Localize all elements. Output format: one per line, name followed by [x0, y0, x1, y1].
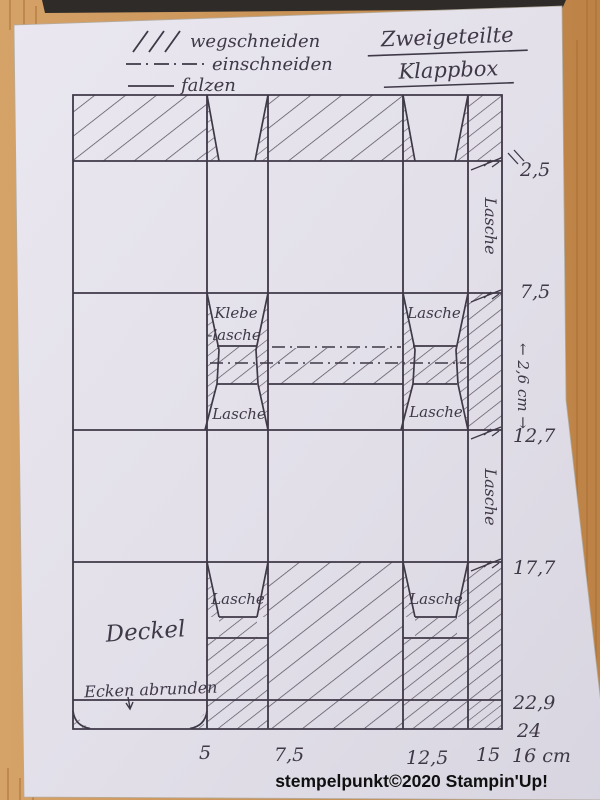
title-line2: Klappbox: [397, 56, 499, 84]
legend-label-falzen: falzen: [179, 75, 236, 96]
lasche-label-lid-left: Lasche: [210, 590, 265, 608]
klebelasche-label-line1: Klebe: [213, 304, 257, 322]
measure-16cm: 16 cm: [512, 745, 571, 767]
measure-17-7: 17,7: [513, 557, 556, 579]
measure-7-5b: 7,5: [274, 744, 304, 766]
template-photo-canvas: wegschneiden einschneiden falzen Zweiget…: [0, 0, 600, 800]
slit-width-note: ← 2,6 cm →: [514, 343, 532, 429]
measure-5: 5: [199, 742, 211, 764]
legend-label-wegschneiden: wegschneiden: [190, 31, 320, 52]
lasche-label-side-bottom: Lasche: [481, 467, 500, 525]
measure-12-7: 12,7: [513, 425, 556, 447]
lasche-label-mid-left-bottom: Lasche: [211, 405, 266, 423]
lasche-label-side-top: Lasche: [481, 196, 500, 254]
measure-12-5: 12,5: [406, 747, 448, 769]
measure-24: 24: [516, 720, 541, 742]
title-line1: Zweigeteilte: [379, 23, 514, 52]
photo-of-hand-drawn-template: wegschneiden einschneiden falzen Zweiget…: [0, 0, 600, 800]
measure-15: 15: [476, 744, 500, 766]
lasche-label-mid-right-top: Lasche: [406, 304, 461, 322]
lasche-label-lid-right: Lasche: [408, 590, 463, 608]
lasche-label-mid-right-bottom: Lasche: [408, 403, 463, 421]
watermark-credit: stempelpunkt©2020 Stampin'Up!: [275, 771, 548, 791]
measure-2-5: 2,5: [519, 159, 550, 181]
measure-7-5: 7,5: [520, 281, 550, 303]
legend-label-einschneiden: einschneiden: [212, 54, 333, 75]
klebelasche-label-line2: -lasche: [207, 326, 261, 344]
measure-22-9: 22,9: [512, 692, 555, 714]
